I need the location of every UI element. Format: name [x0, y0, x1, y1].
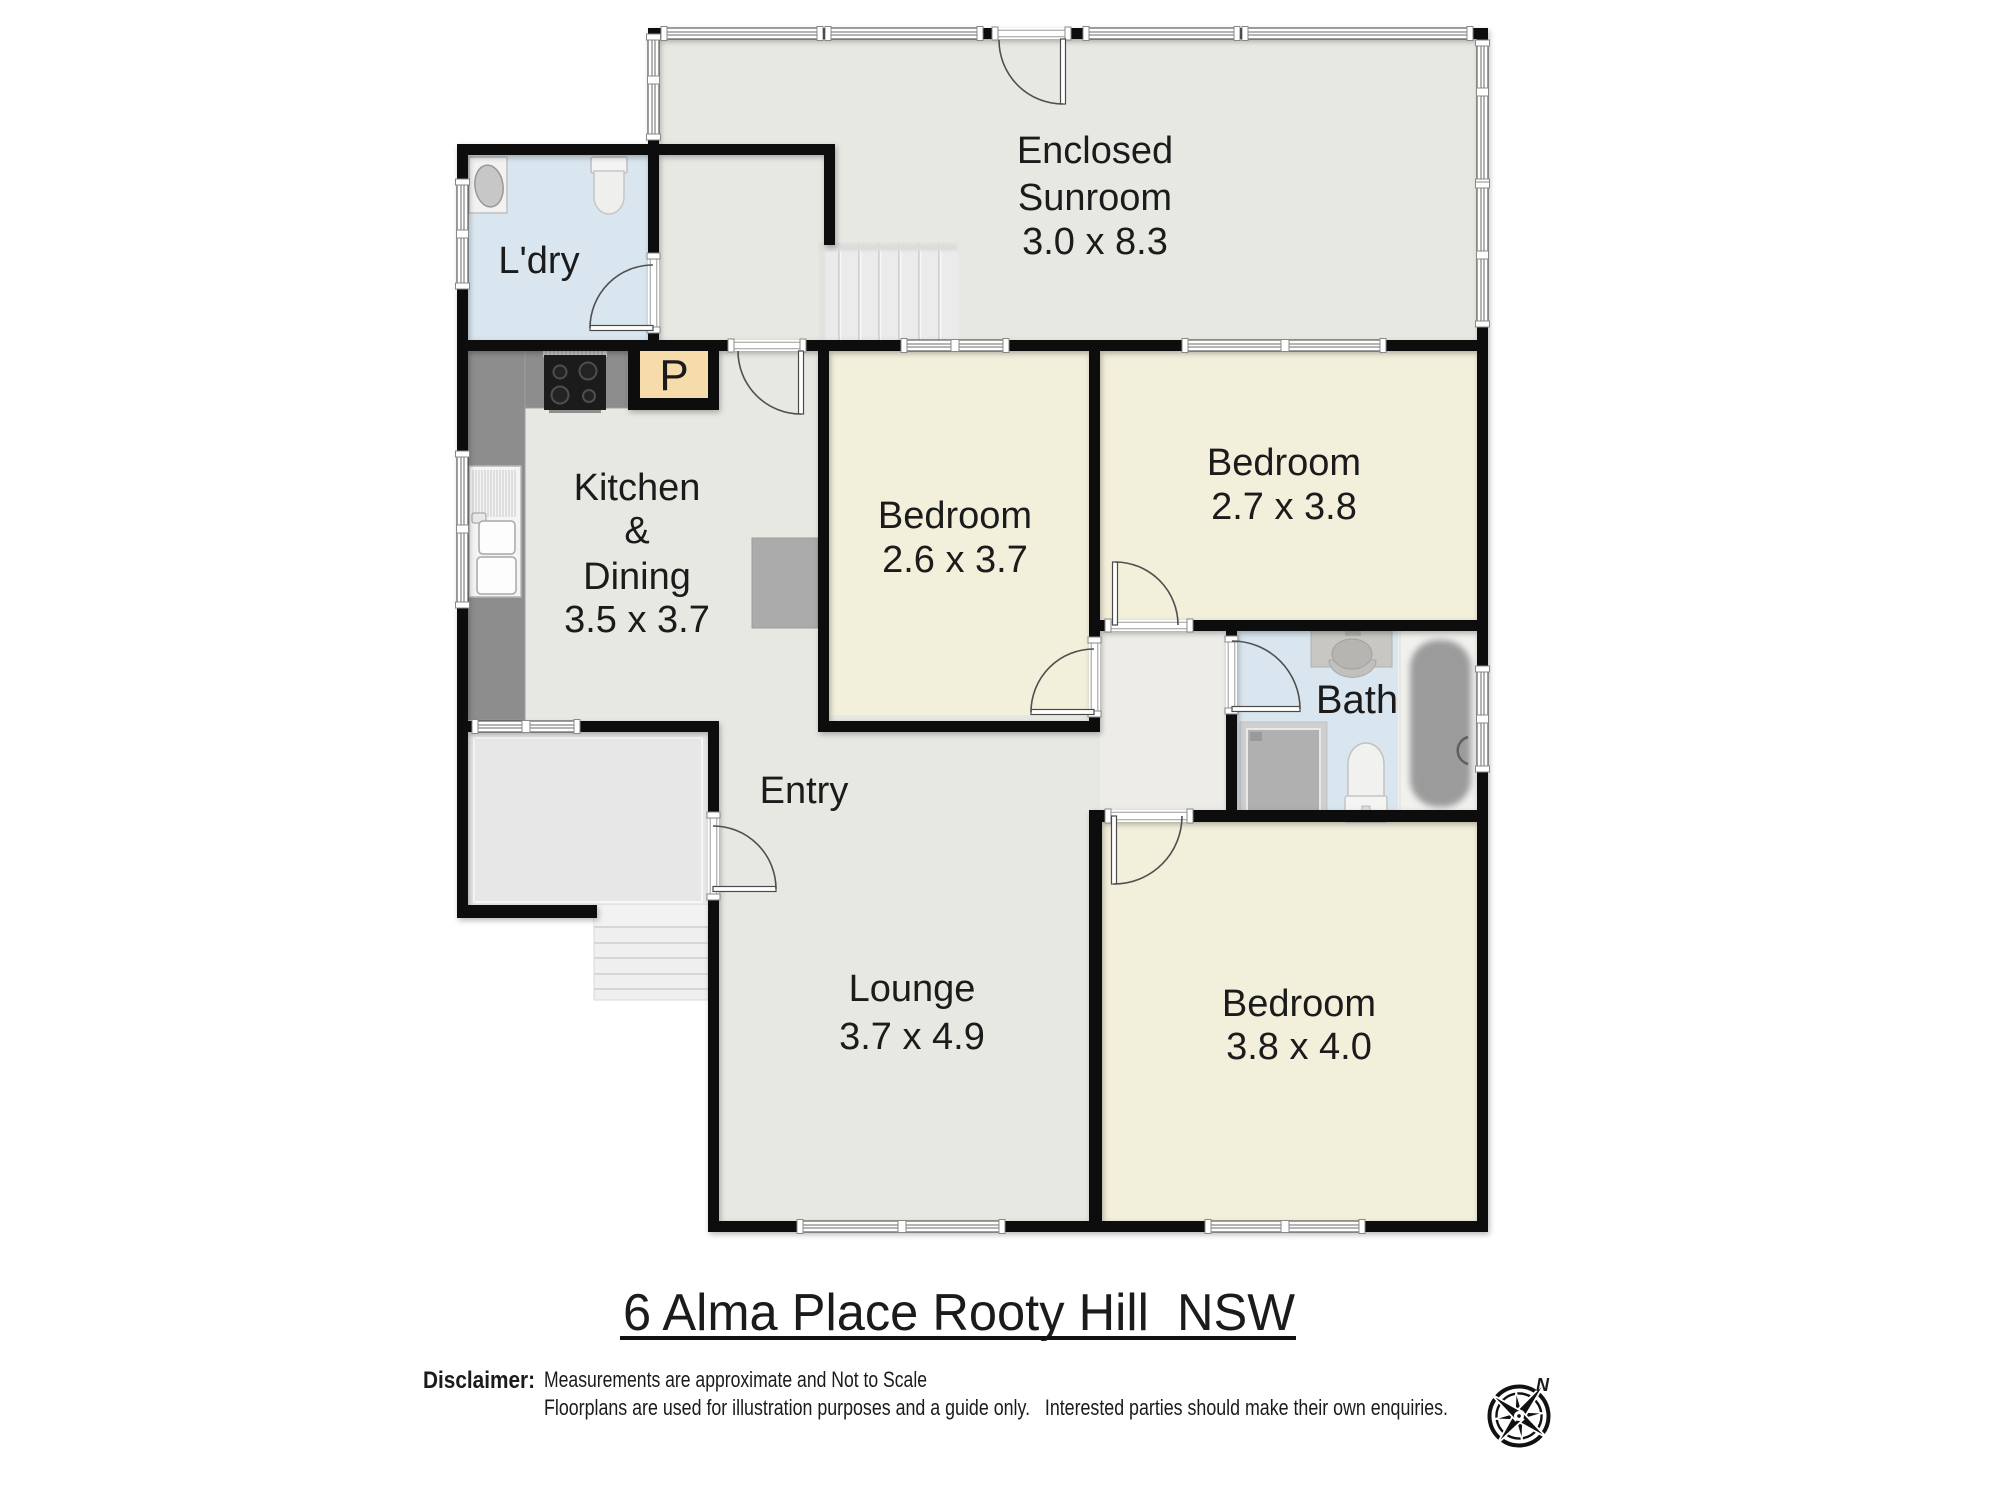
svg-text:Entry: Entry: [760, 770, 849, 812]
svg-text:2.6 x 3.7: 2.6 x 3.7: [882, 539, 1028, 581]
svg-text:3.5 x 3.7: 3.5 x 3.7: [564, 599, 710, 641]
svg-text:Bedroom: Bedroom: [1222, 983, 1376, 1025]
svg-text:N: N: [1536, 1375, 1550, 1395]
svg-text:Measurements are approximate a: Measurements are approximate and Not to …: [544, 1367, 927, 1392]
svg-text:L'dry: L'dry: [498, 240, 579, 282]
svg-text:Lounge: Lounge: [849, 968, 976, 1010]
svg-text:Floorplans are used for illust: Floorplans are used for illustration pur…: [544, 1395, 1448, 1420]
svg-text:Kitchen: Kitchen: [574, 467, 701, 509]
svg-text:Sunroom: Sunroom: [1018, 177, 1172, 219]
svg-text:3.8 x 4.0: 3.8 x 4.0: [1226, 1026, 1372, 1068]
svg-text:6 Alma Place Rooty Hill NSW: 6 Alma Place Rooty Hill NSW: [623, 1284, 1295, 1342]
svg-text:Enclosed: Enclosed: [1017, 130, 1173, 172]
svg-text:&: &: [624, 510, 649, 552]
svg-text:Bedroom: Bedroom: [878, 495, 1032, 537]
svg-text:3.0 x 8.3: 3.0 x 8.3: [1022, 221, 1168, 263]
svg-text:Bedroom: Bedroom: [1207, 442, 1361, 484]
svg-text:Dining: Dining: [583, 556, 691, 598]
svg-text:2.7 x 3.8: 2.7 x 3.8: [1211, 486, 1357, 528]
svg-text:Bath: Bath: [1316, 678, 1398, 722]
svg-text:3.7 x 4.9: 3.7 x 4.9: [839, 1016, 985, 1058]
svg-text:Disclaimer:: Disclaimer:: [423, 1367, 535, 1394]
svg-text:P: P: [659, 351, 688, 400]
